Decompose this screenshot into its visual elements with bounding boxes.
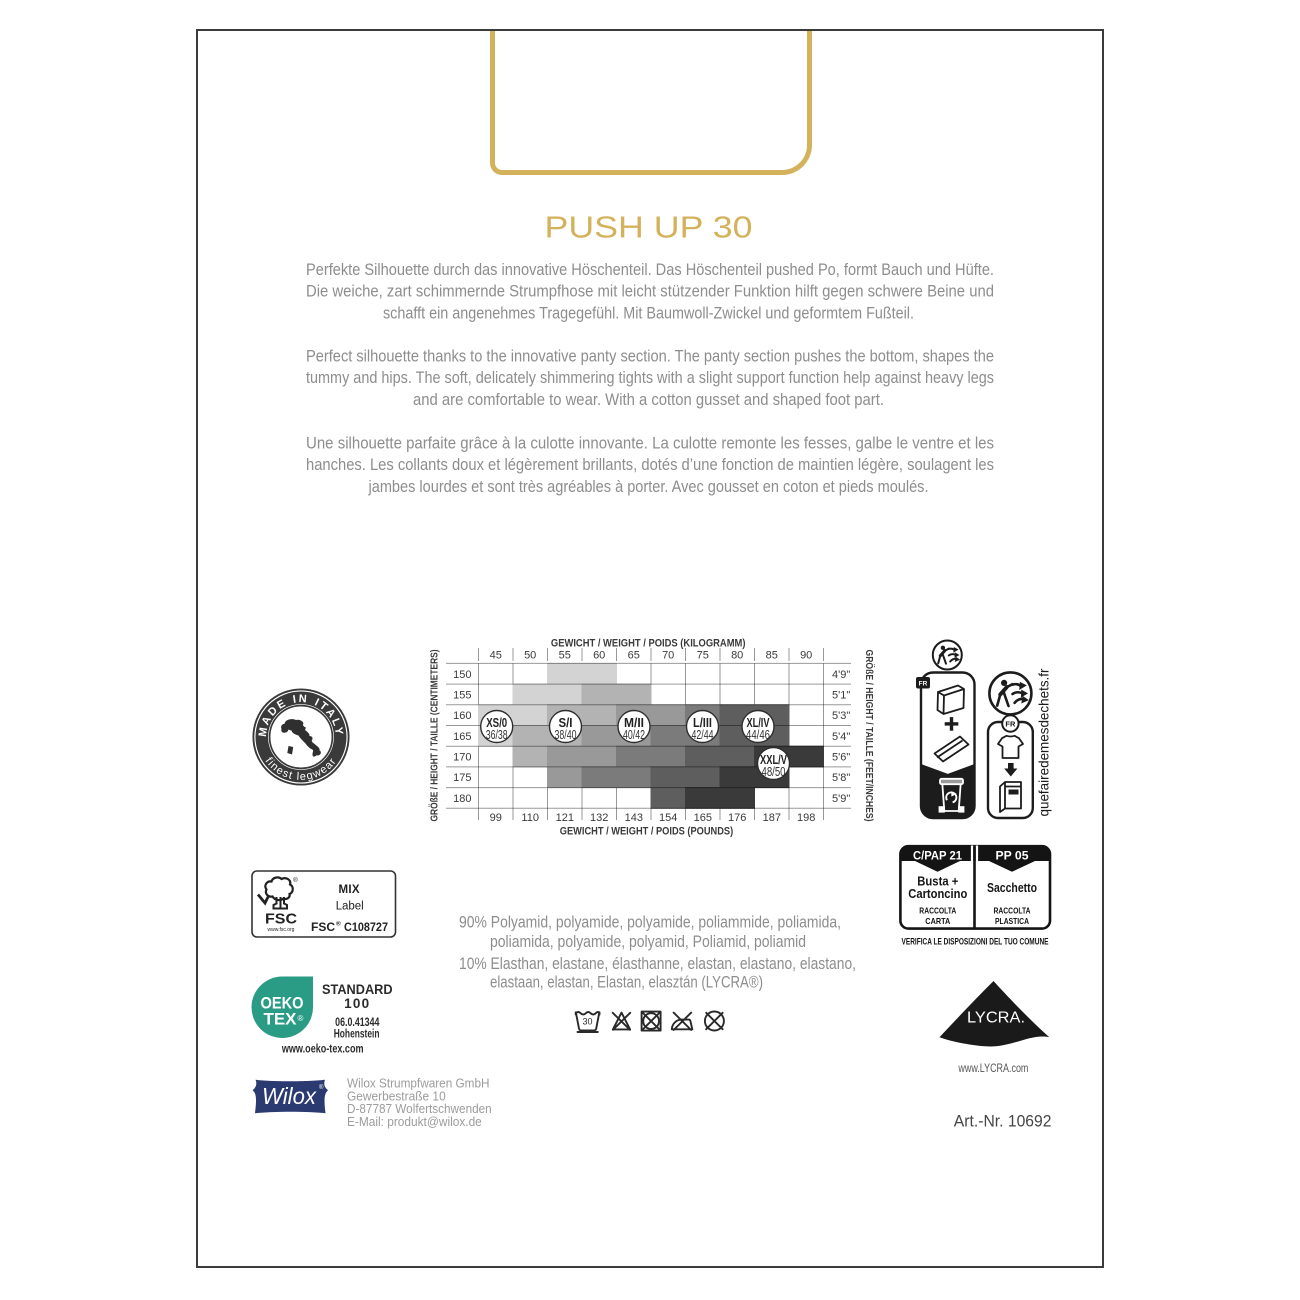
- svg-text:170: 170: [453, 752, 471, 764]
- svg-text:5'8": 5'8": [832, 772, 850, 784]
- svg-text:Hohenstein: Hohenstein: [334, 1029, 380, 1041]
- svg-text:40/42: 40/42: [623, 728, 645, 742]
- svg-text:FSC: FSC: [265, 911, 297, 928]
- svg-text:GEWICHT / WEIGHT / POIDS (POUN: GEWICHT / WEIGHT / POIDS (POUNDS): [560, 826, 734, 838]
- svg-text:Art.-Nr. 10692: Art.-Nr. 10692: [954, 1111, 1052, 1130]
- svg-text:Cartoncino: Cartoncino: [908, 887, 967, 901]
- svg-text:LYCRA.: LYCRA.: [967, 1010, 1025, 1027]
- svg-text:GRÖßE / HEIGHT / TAILLE (CENTI: GRÖßE / HEIGHT / TAILLE (CENTIMETERS): [428, 650, 441, 822]
- svg-text:187: 187: [763, 812, 781, 824]
- svg-text:®: ®: [319, 1084, 324, 1091]
- svg-text:Label: Label: [336, 901, 364, 913]
- svg-text:®: ®: [336, 920, 341, 928]
- svg-text:poliamida, polyamide, polyamid: poliamida, polyamide, polyamid, Poliamid…: [490, 933, 806, 951]
- svg-text:tummy and hips. The soft, deli: tummy and hips. The soft, delicately shi…: [306, 368, 994, 387]
- svg-text:PLASTICA: PLASTICA: [995, 916, 1029, 926]
- svg-text:60: 60: [593, 649, 605, 661]
- svg-text:VERIFICA LE DISPOSIZIONI DEL T: VERIFICA LE DISPOSIZIONI DEL TUO COMUNE: [902, 937, 1049, 947]
- svg-text:STANDARD: STANDARD: [322, 982, 393, 997]
- svg-text:110: 110: [521, 812, 539, 824]
- svg-text:198: 198: [797, 812, 815, 824]
- svg-text:75: 75: [697, 649, 709, 661]
- svg-text:165: 165: [694, 812, 712, 824]
- svg-text:FSC: FSC: [311, 922, 335, 934]
- svg-text:10% Elasthan, elastane, élasth: 10% Elasthan, elastane, élasthanne, elas…: [459, 955, 856, 973]
- svg-text:121: 121: [556, 812, 574, 824]
- svg-text:90: 90: [800, 649, 812, 661]
- svg-text:E-Mail: produkt@wilox.de: E-Mail: produkt@wilox.de: [347, 1115, 482, 1129]
- svg-text:143: 143: [625, 812, 643, 824]
- svg-text:C/PAP 21: C/PAP 21: [913, 851, 963, 863]
- svg-text:FR: FR: [1005, 720, 1016, 729]
- svg-text:D-87787 Wolfertschwenden: D-87787 Wolfertschwenden: [347, 1102, 492, 1116]
- svg-text:154: 154: [659, 812, 677, 824]
- svg-text:5'1": 5'1": [832, 689, 850, 701]
- svg-text:quefairedemesdechets.fr: quefairedemesdechets.fr: [1036, 668, 1052, 816]
- svg-text:48/50: 48/50: [762, 765, 786, 779]
- svg-text:hanches. Les collants doux et: hanches. Les collants doux et légèrement…: [306, 455, 994, 474]
- svg-text:RACCOLTA: RACCOLTA: [919, 906, 956, 916]
- svg-text:44/46: 44/46: [746, 728, 770, 742]
- svg-text:www.oeko-tex.com: www.oeko-tex.com: [281, 1044, 363, 1056]
- svg-text:Perfect silhouette thanks to t: Perfect silhouette thanks to the innovat…: [306, 346, 994, 365]
- svg-text:5'6": 5'6": [832, 752, 850, 764]
- svg-text:70: 70: [662, 649, 674, 661]
- svg-text:®: ®: [298, 1014, 304, 1023]
- svg-text:www.LYCRA.com: www.LYCRA.com: [958, 1063, 1029, 1075]
- svg-text:TEX: TEX: [264, 1010, 298, 1029]
- svg-text:GEWICHT / WEIGHT / POIDS (KILO: GEWICHT / WEIGHT / POIDS (KILOGRAMM): [551, 637, 746, 649]
- svg-text:Wilox Strumpfwaren GmbH: Wilox Strumpfwaren GmbH: [347, 1077, 490, 1091]
- svg-text:schafft ein angenehmes Tragege: schafft ein angenehmes Tragegefühl. Mit …: [383, 303, 914, 322]
- svg-text:175: 175: [453, 772, 471, 784]
- svg-text:CARTA: CARTA: [925, 916, 950, 926]
- svg-text:150: 150: [453, 669, 471, 681]
- svg-text:65: 65: [628, 649, 640, 661]
- svg-text:36/38: 36/38: [486, 728, 508, 742]
- svg-text:99: 99: [490, 812, 502, 824]
- svg-text:jambes lourdes et sont très ag: jambes lourdes et sont très agréables à …: [368, 477, 929, 496]
- svg-text:55: 55: [559, 649, 571, 661]
- svg-text:100: 100: [344, 996, 369, 1011]
- svg-text:and are comfortable to wear. W: and are comfortable to wear. With a cott…: [413, 390, 884, 409]
- svg-text:4'9": 4'9": [832, 669, 850, 681]
- svg-text:50: 50: [524, 649, 536, 661]
- svg-text:06.0.41344: 06.0.41344: [335, 1017, 380, 1029]
- svg-text:Perfekte Silhouette durch das: Perfekte Silhouette durch das innovative…: [306, 260, 994, 279]
- svg-text:155: 155: [453, 689, 471, 701]
- svg-text:160: 160: [453, 710, 471, 722]
- svg-text:30: 30: [582, 1017, 592, 1027]
- svg-text:PUSH UP 30: PUSH UP 30: [545, 210, 753, 245]
- svg-text:MIX: MIX: [339, 884, 360, 896]
- svg-text:176: 176: [728, 812, 746, 824]
- svg-text:PP 05: PP 05: [996, 851, 1030, 863]
- svg-text:FR: FR: [919, 681, 928, 688]
- svg-text:Une silhouette parfaite grâce: Une silhouette parfaite grâce à la culot…: [306, 433, 994, 452]
- svg-text:5'4": 5'4": [832, 731, 850, 743]
- svg-text:42/44: 42/44: [692, 728, 714, 742]
- svg-text:85: 85: [766, 649, 778, 661]
- svg-text:C108727: C108727: [344, 922, 388, 934]
- svg-text:Wilox: Wilox: [262, 1083, 317, 1109]
- svg-text:5'3": 5'3": [832, 710, 850, 722]
- svg-text:45: 45: [490, 649, 502, 661]
- svg-text:RACCOLTA: RACCOLTA: [994, 906, 1031, 916]
- svg-text:Sacchetto: Sacchetto: [987, 881, 1037, 895]
- svg-text:Die weiche, zart schimmernde S: Die weiche, zart schimmernde Strumpfhose…: [306, 282, 994, 301]
- svg-text:165: 165: [453, 731, 471, 743]
- svg-text:elastaan, elastan, Elastan, el: elastaan, elastan, Elastan, elasztán (LY…: [490, 974, 763, 992]
- svg-text:www.fsc.org: www.fsc.org: [268, 927, 295, 933]
- svg-text:®: ®: [293, 876, 298, 884]
- svg-text:90% Polyamid, polyamide, polya: 90% Polyamid, polyamide, polyamide, poli…: [459, 913, 841, 931]
- svg-text:GRÖßE / HEIGHT / TAILLE (FEET/: GRÖßE / HEIGHT / TAILLE (FEET/INCHES): [863, 650, 876, 822]
- svg-text:132: 132: [590, 812, 608, 824]
- svg-text:180: 180: [453, 793, 471, 805]
- svg-text:38/40: 38/40: [555, 728, 577, 742]
- svg-text:80: 80: [731, 649, 743, 661]
- svg-text:5'9": 5'9": [832, 793, 850, 805]
